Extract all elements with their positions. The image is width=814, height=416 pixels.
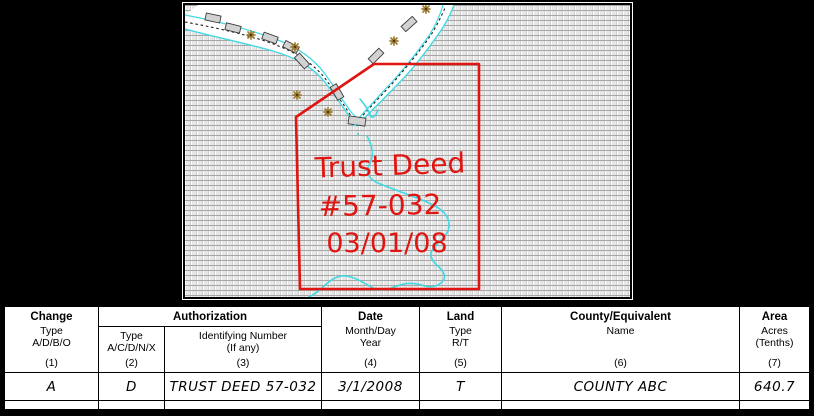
column-number: (4) (364, 357, 377, 372)
header-sub: A/C/D/N/X (107, 342, 155, 354)
cell-change-type: A (5, 373, 99, 401)
header-sub: (If any) (227, 342, 260, 354)
column-number: (1) (45, 357, 58, 372)
column-number: (5) (454, 357, 467, 372)
header-title: Land (447, 311, 474, 325)
header-sub: Type (449, 325, 472, 337)
header-sub: Acres (761, 325, 788, 337)
stream-dot (357, 133, 359, 135)
header-title: Date (358, 311, 383, 325)
bridge-icon (348, 116, 366, 126)
cell-identifying-number: TRUST DEED 57-032 (165, 373, 322, 401)
survey-marker-icon (390, 37, 398, 45)
col-header-auth-type: Type A/C/D/N/X (2) (99, 327, 165, 372)
stream-dot (354, 124, 356, 126)
column-number: (7) (768, 357, 781, 372)
cell-auth-type: D (99, 373, 165, 401)
cell-county-name: COUNTY ABC (502, 373, 740, 401)
header-sub: Type (40, 325, 63, 337)
empty-row-cell (5, 401, 99, 409)
empty-row-cell (322, 401, 420, 409)
header-sub: (Tenths) (756, 337, 794, 349)
empty-row-cell (99, 401, 165, 409)
survey-marker-icon (291, 43, 299, 51)
empty-row-cell (165, 401, 322, 409)
change-record-table: Change Type A/D/B/O (1) Authorization Ty… (3, 305, 811, 411)
survey-marker-icon (324, 108, 332, 116)
header-sub: A/D/B/O (32, 337, 71, 349)
col-header-identifying-number: Identifying Number (If any) (3) (165, 327, 321, 372)
header-sub: Name (606, 325, 634, 337)
col-header-area: Area Acres (Tenths) (7) (740, 307, 809, 373)
header-sub: Identifying Number (199, 330, 287, 342)
empty-row-cell (420, 401, 502, 409)
header-sub: Month/Day (345, 325, 396, 337)
header-title: Authorization (99, 307, 321, 327)
header-title: County/Equivalent (570, 311, 671, 325)
col-header-authorization: Authorization Type A/C/D/N/X (2) Identif… (99, 307, 322, 373)
column-number: (3) (237, 357, 250, 372)
survey-marker-icon (422, 5, 430, 13)
cell-land-type: T (420, 373, 502, 401)
empty-row-cell (502, 401, 740, 409)
cell-date: 3/1/2008 (322, 373, 420, 401)
survey-marker-icon (293, 91, 301, 99)
map-annotation-line3: 03/01/08 (326, 228, 447, 259)
column-number: (6) (614, 357, 627, 372)
col-header-date: Date Month/Day Year (4) (322, 307, 420, 373)
map-panel: Trust Deed #57-032 03/01/08 (183, 3, 632, 299)
header-title: Area (762, 311, 788, 325)
map-annotation-line2: #57-032 (318, 188, 441, 223)
column-number: (2) (125, 357, 138, 372)
survey-marker-icon (247, 31, 255, 39)
header-title: Change (30, 311, 72, 325)
header-sub: Year (360, 337, 381, 349)
col-header-county: County/Equivalent Name (6) (502, 307, 740, 373)
empty-row-cell (740, 401, 809, 409)
col-header-land-type: Land Type R/T (5) (420, 307, 502, 373)
col-header-change: Change Type A/D/B/O (1) (5, 307, 99, 373)
header-sub: Type (120, 330, 143, 342)
map-annotation-line1: Trust Deed (313, 146, 466, 184)
cell-area-acres: 640.7 (740, 373, 809, 401)
plat-map-graphic: Trust Deed #57-032 03/01/08 (185, 5, 630, 297)
header-sub: R/T (452, 337, 469, 349)
